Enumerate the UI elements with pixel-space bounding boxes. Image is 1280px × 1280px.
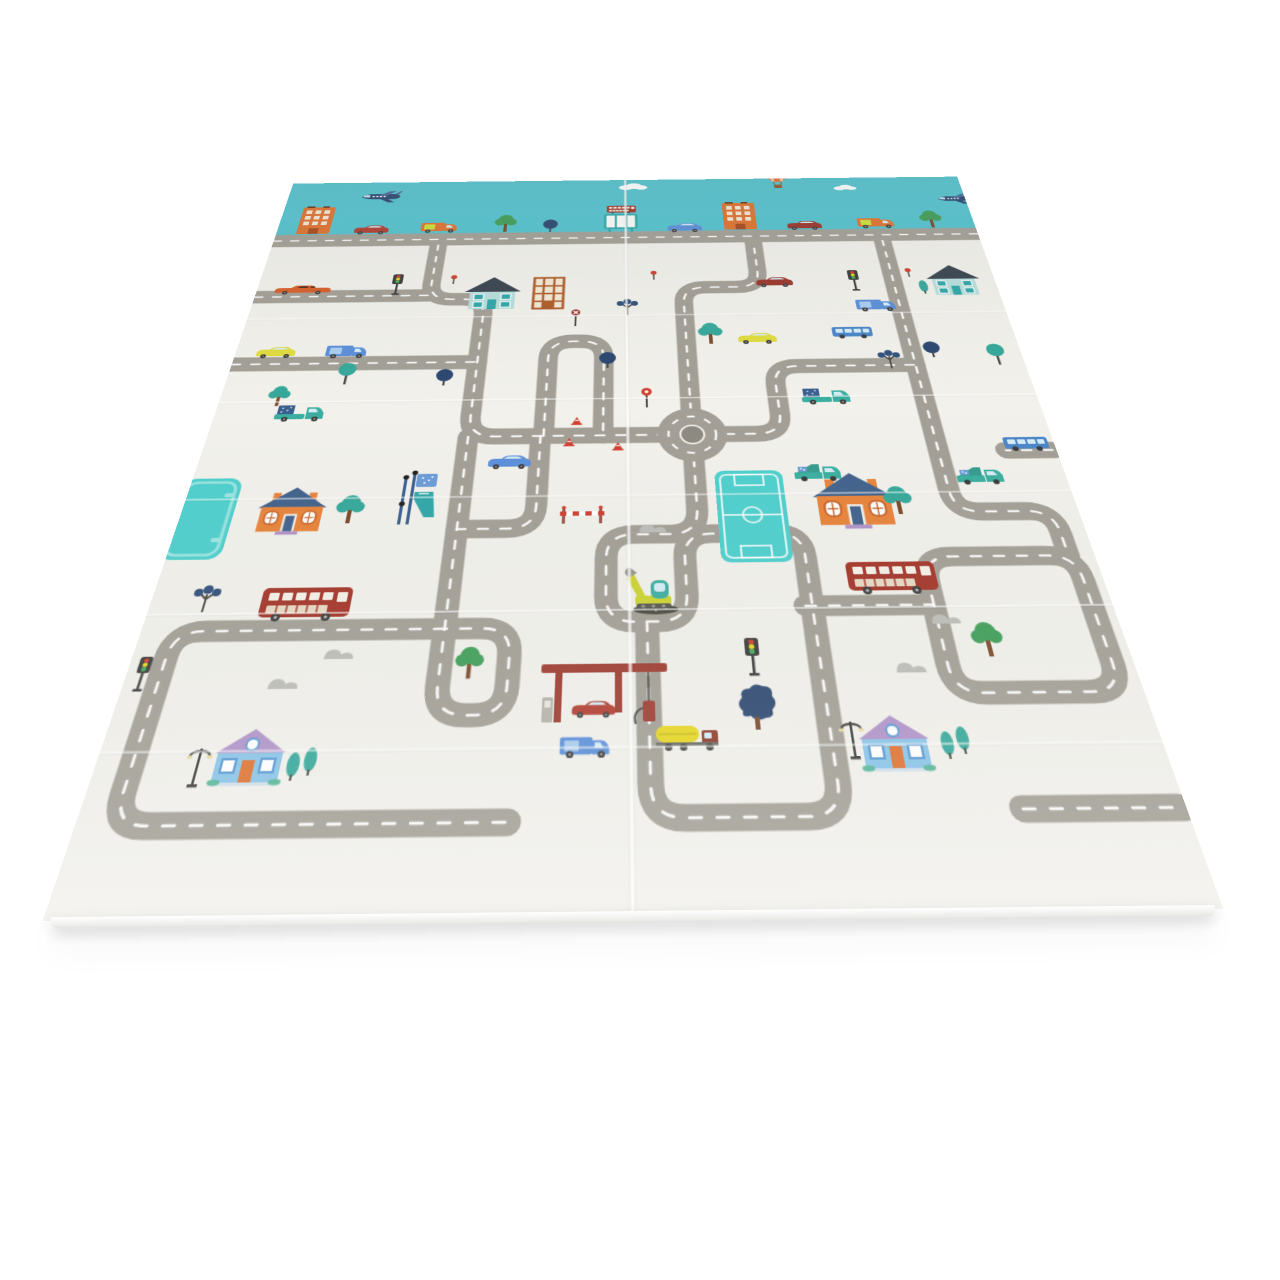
play-mat-print [43,177,1224,922]
lighting-overlay [43,177,1224,922]
product-photo [0,0,1280,1280]
photo-alignment [0,0,1280,1280]
play-mat [43,177,1224,922]
